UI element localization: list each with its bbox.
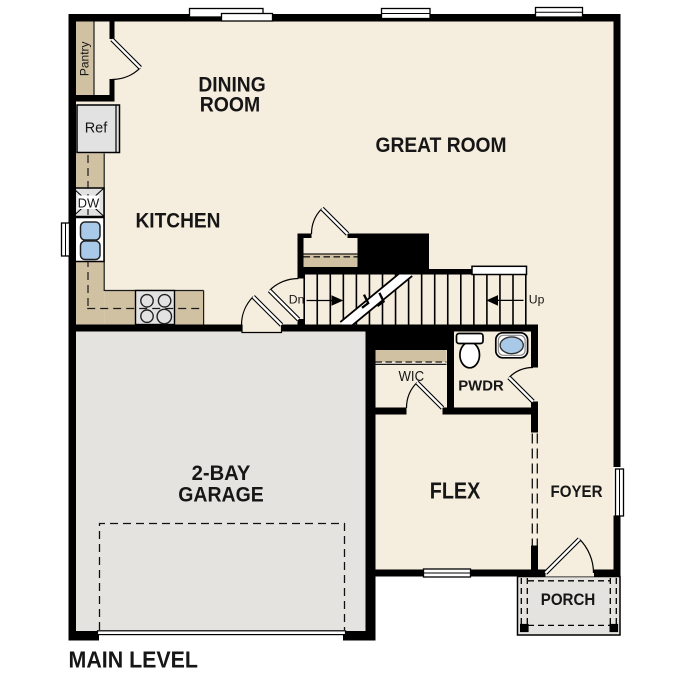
svg-text:ROOM: ROOM <box>200 93 261 117</box>
svg-text:GREAT ROOM: GREAT ROOM <box>376 133 507 157</box>
svg-text:GARAGE: GARAGE <box>178 483 264 507</box>
svg-text:PWDR: PWDR <box>458 379 504 395</box>
svg-text:DW: DW <box>78 196 100 211</box>
svg-text:Up: Up <box>529 293 545 307</box>
svg-text:Dn: Dn <box>289 293 305 307</box>
svg-text:MAIN LEVEL: MAIN LEVEL <box>69 647 199 673</box>
svg-text:FLEX: FLEX <box>430 478 481 504</box>
svg-text:Pantry: Pantry <box>77 41 91 76</box>
svg-text:PORCH: PORCH <box>541 591 596 609</box>
svg-text:FOYER: FOYER <box>551 483 603 501</box>
svg-text:WIC: WIC <box>399 369 425 385</box>
svg-text:2-BAY: 2-BAY <box>192 461 251 485</box>
svg-text:Ref: Ref <box>85 121 109 137</box>
svg-text:KITCHEN: KITCHEN <box>136 209 221 233</box>
